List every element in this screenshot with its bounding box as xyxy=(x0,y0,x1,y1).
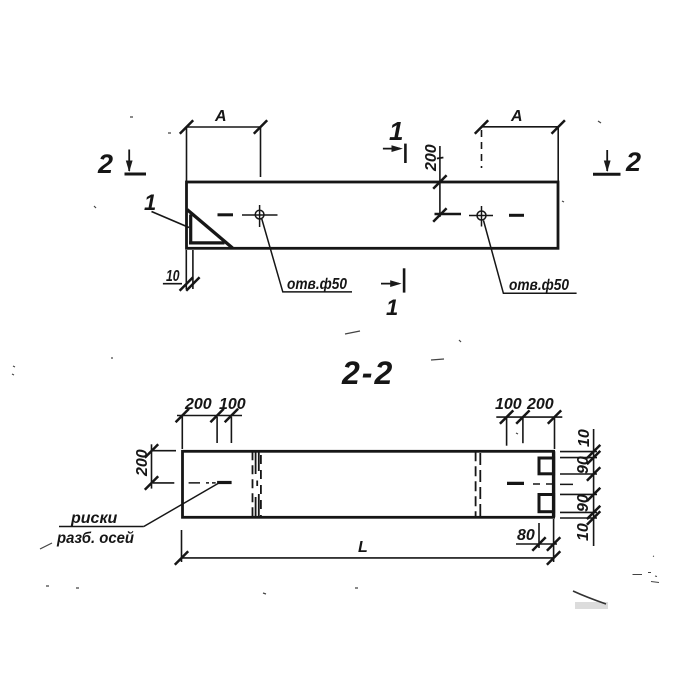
svg-text:200: 200 xyxy=(184,396,212,413)
svg-text:2: 2 xyxy=(625,147,641,177)
svg-text:отв.ф50: отв.ф50 xyxy=(509,277,569,294)
svg-text:2-2: 2-2 xyxy=(341,355,394,391)
svg-text:100: 100 xyxy=(495,396,522,413)
svg-text:200: 200 xyxy=(423,144,440,172)
svg-text:10: 10 xyxy=(166,268,180,285)
svg-text:1: 1 xyxy=(386,295,398,320)
svg-text:200: 200 xyxy=(526,396,554,413)
svg-text:100: 100 xyxy=(219,396,246,413)
svg-text:A: A xyxy=(510,108,523,125)
svg-text:2: 2 xyxy=(97,149,113,179)
svg-text:90: 90 xyxy=(575,494,592,512)
svg-text:80: 80 xyxy=(517,527,535,544)
svg-text:разб. осей: разб. осей xyxy=(56,530,134,547)
svg-text:отв.ф50: отв.ф50 xyxy=(287,276,347,293)
svg-text:10: 10 xyxy=(575,523,592,541)
svg-text:90: 90 xyxy=(575,456,592,474)
svg-text:10: 10 xyxy=(576,429,593,447)
svg-text:1: 1 xyxy=(389,116,403,146)
svg-text:A: A xyxy=(214,108,227,125)
svg-text:риски: риски xyxy=(70,510,118,527)
svg-text:1: 1 xyxy=(144,190,156,215)
svg-text:200: 200 xyxy=(134,449,151,477)
svg-text:L: L xyxy=(358,539,368,556)
